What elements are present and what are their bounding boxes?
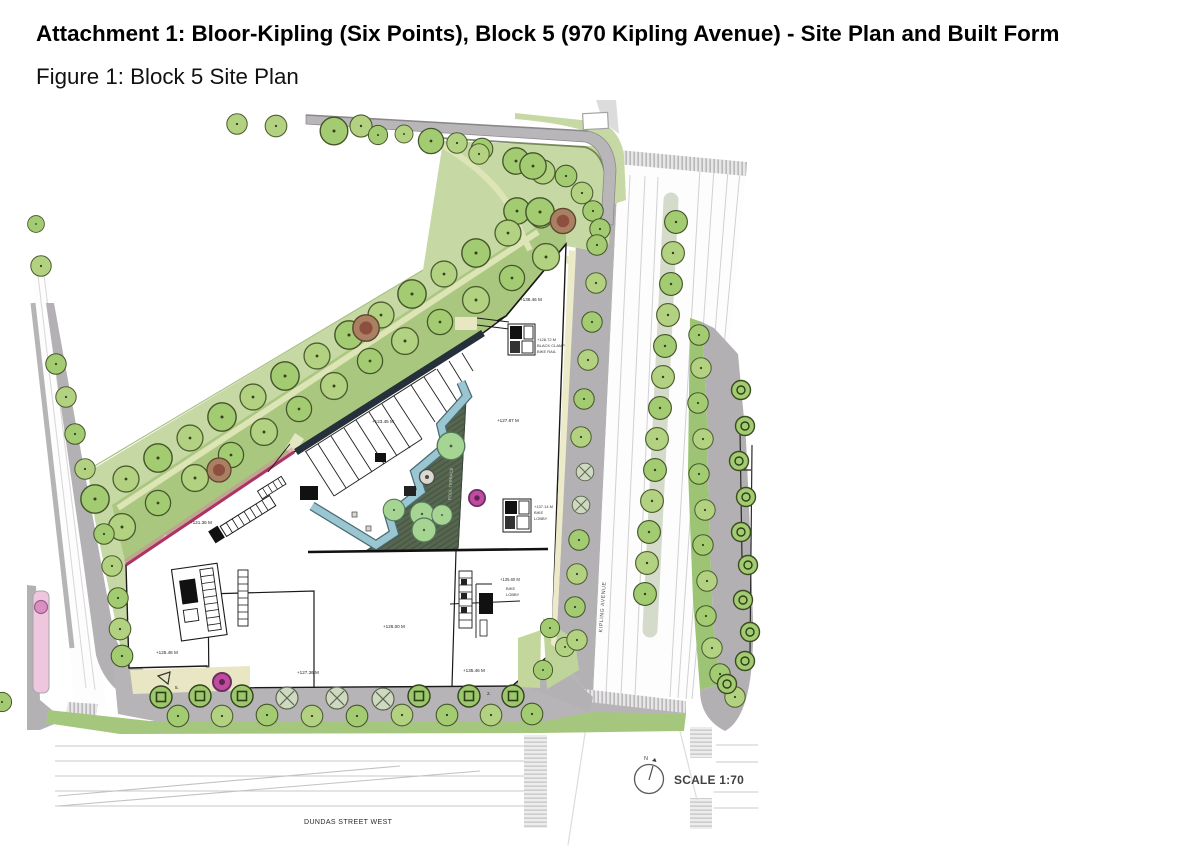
svg-text:+121.36 M: +121.36 M [190, 520, 212, 525]
svg-text:DUNDAS STREET WEST: DUNDAS STREET WEST [304, 819, 393, 826]
svg-text:LOBBY: LOBBY [506, 592, 520, 597]
svg-text:BLACK CLAMP: BLACK CLAMP [537, 343, 565, 348]
svg-text:+127.36 M: +127.36 M [297, 670, 319, 675]
svg-text:+127.87 M: +127.87 M [497, 418, 519, 423]
svg-text:BIKE: BIKE [506, 586, 515, 591]
svg-text:BIKE: BIKE [534, 510, 543, 515]
svg-text:+125.46 M: +125.46 M [156, 650, 178, 655]
svg-text:+128.72 M: +128.72 M [537, 337, 556, 342]
svg-text:BIKE RAIL: BIKE RAIL [537, 349, 557, 354]
svg-text:+126.00 M: +126.00 M [383, 624, 405, 629]
svg-text:2.: 2. [487, 691, 491, 696]
svg-text:+138.46 M: +138.46 M [520, 297, 542, 302]
svg-text:N: N [644, 756, 648, 762]
svg-text:LOBBY: LOBBY [534, 516, 548, 521]
svg-text:+123.45 M: +123.45 M [372, 419, 394, 424]
svg-text:+135.46 M: +135.46 M [463, 668, 485, 673]
svg-text:+137.14 M: +137.14 M [534, 504, 553, 509]
svg-text:5.: 5. [175, 685, 179, 690]
svg-text:+135.60 M: +135.60 M [500, 577, 520, 582]
svg-text:SCALE 1:70: SCALE 1:70 [674, 773, 744, 787]
